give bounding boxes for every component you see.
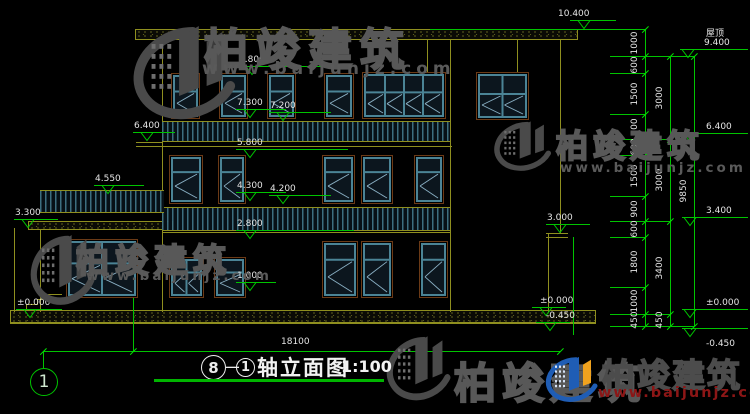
window (419, 241, 448, 298)
window (171, 73, 200, 119)
extension-line (43, 352, 44, 368)
slab-edge-line (546, 237, 568, 238)
window (362, 72, 446, 119)
elevation-label: 1.000 (237, 271, 263, 281)
brand-logo: 柏竣建筑 www.baijunjz.com (542, 349, 750, 414)
window (361, 155, 393, 204)
wall-line (162, 40, 163, 312)
drawing-scale: 1:100 (341, 357, 392, 376)
axis-bubble-1: 1 (30, 368, 58, 396)
roof-label: 屋顶 (706, 26, 724, 39)
balcony-railing (162, 207, 450, 231)
window (361, 241, 393, 298)
elevation-label: 5.800 (237, 138, 263, 148)
window (218, 155, 246, 204)
elevation-label: -0.450 (706, 339, 735, 349)
wall-line (450, 40, 451, 312)
dim-chain-label: 1800 (630, 251, 640, 274)
elevation-mark-triangle (553, 224, 567, 234)
window (169, 155, 203, 204)
cad-elevation-canvas: 柏竣建筑 www.baijunjz.com 柏竣建筑 www.baijunjz.… (0, 0, 750, 414)
dim-chain-label: 1500 (630, 164, 640, 187)
axis-8-label: 8 (208, 359, 218, 377)
wall-line (517, 40, 518, 73)
elevation-label: 6.400 (134, 121, 160, 131)
slab-band (10, 310, 596, 323)
dim-chain-label: 1000 (630, 289, 640, 312)
elevation-label: 3.000 (547, 213, 573, 223)
window (66, 239, 138, 298)
dimension-line (610, 139, 670, 140)
dim-chain-label: 450 (630, 311, 640, 328)
elevation-mark-triangle (243, 109, 257, 119)
elevation-label: 4.550 (95, 174, 121, 184)
elevation-label: 4.200 (270, 184, 296, 194)
elevation-mark-triangle (140, 132, 154, 142)
brand-logo-icon (542, 351, 602, 413)
elevation-label: ±0.000 (540, 296, 573, 306)
extension-line (694, 56, 695, 326)
dimension-line (610, 287, 645, 288)
dimension-line (610, 56, 694, 57)
elevation-mark-triangle (243, 282, 257, 292)
elevation-label: -0.450 (546, 311, 575, 321)
slab-band (135, 29, 578, 40)
elevation-label: 10.400 (558, 9, 590, 19)
wall-line (427, 40, 428, 73)
elevation-mark-triangle (245, 66, 259, 76)
window (322, 155, 355, 204)
elevation-mark-triangle (23, 309, 37, 319)
elevation-mark-triangle (243, 149, 257, 159)
dim-chain-label: 900 (630, 118, 640, 135)
slab-band (28, 221, 173, 230)
elevation-mark-triangle (276, 195, 290, 205)
dim-chain-label: 600 (630, 220, 640, 237)
dim-chain-label: 450 (655, 311, 665, 328)
title-underline (154, 379, 384, 382)
slab-edge-line (136, 142, 163, 143)
dim-chain-label: 600 (630, 56, 640, 73)
window (322, 241, 358, 298)
dim-chain-label: 3000 (655, 169, 665, 192)
window (476, 72, 529, 120)
axis-bubble-label: 1 (39, 372, 50, 392)
axis-1-label: 1 (241, 360, 250, 375)
wall-line (14, 228, 15, 312)
elevation-label: 3.300 (15, 208, 41, 218)
window (414, 155, 444, 204)
elevation-label: 2.800 (237, 219, 263, 229)
overall-dimension-label: 18100 (281, 337, 310, 347)
dimension-line (610, 196, 645, 197)
elevation-label: 9.400 (704, 38, 730, 48)
elevation-label: 3.400 (706, 206, 732, 216)
slab-edge-line (10, 323, 596, 324)
dim-chain-label: 3400 (655, 256, 665, 279)
elevation-label: 7.200 (270, 101, 296, 111)
dimension-line (430, 29, 645, 30)
elevation-mark-triangle (276, 112, 290, 122)
dimension-line (610, 114, 645, 115)
dimension-line (610, 221, 670, 222)
wall-line (560, 40, 561, 233)
elevation-mark-triangle (101, 185, 115, 195)
balcony-railing (162, 121, 450, 142)
extension-line (133, 298, 134, 352)
drawing-title-text: 轴立面图 (257, 352, 349, 382)
elevation-label: 8.800 (239, 55, 265, 65)
brand-logo-url: www.baijunjz.com (598, 385, 750, 401)
elevation-label: 4.300 (237, 181, 263, 191)
elevation-label: ±0.000 (17, 298, 50, 308)
slab-edge-line (162, 232, 451, 233)
elevation-label: 7.300 (237, 98, 263, 108)
dim-chain-label: 600 (630, 138, 640, 155)
elevation-label: 6.400 (706, 122, 732, 132)
elevation-mark-triangle (543, 322, 557, 332)
dim-chain-label: 1500 (630, 82, 640, 105)
axis-circle-1: 1 (236, 358, 255, 377)
elevation-mark-triangle (21, 219, 35, 229)
dimension-line (610, 326, 694, 327)
dim-chain-label: 900 (630, 200, 640, 217)
elevation-mark-triangle (243, 192, 257, 202)
axis-circle-8: 8 (201, 355, 226, 380)
dim-chain-label: 1000 (630, 31, 640, 54)
elevation-label: ±0.000 (706, 298, 739, 308)
dim-chain-label: 9850 (679, 180, 689, 203)
window (169, 257, 204, 298)
extension-line (670, 56, 671, 326)
elevation-mark-triangle (243, 230, 257, 240)
dim-chain-label: 3000 (655, 86, 665, 109)
slab-edge-line (136, 146, 452, 147)
